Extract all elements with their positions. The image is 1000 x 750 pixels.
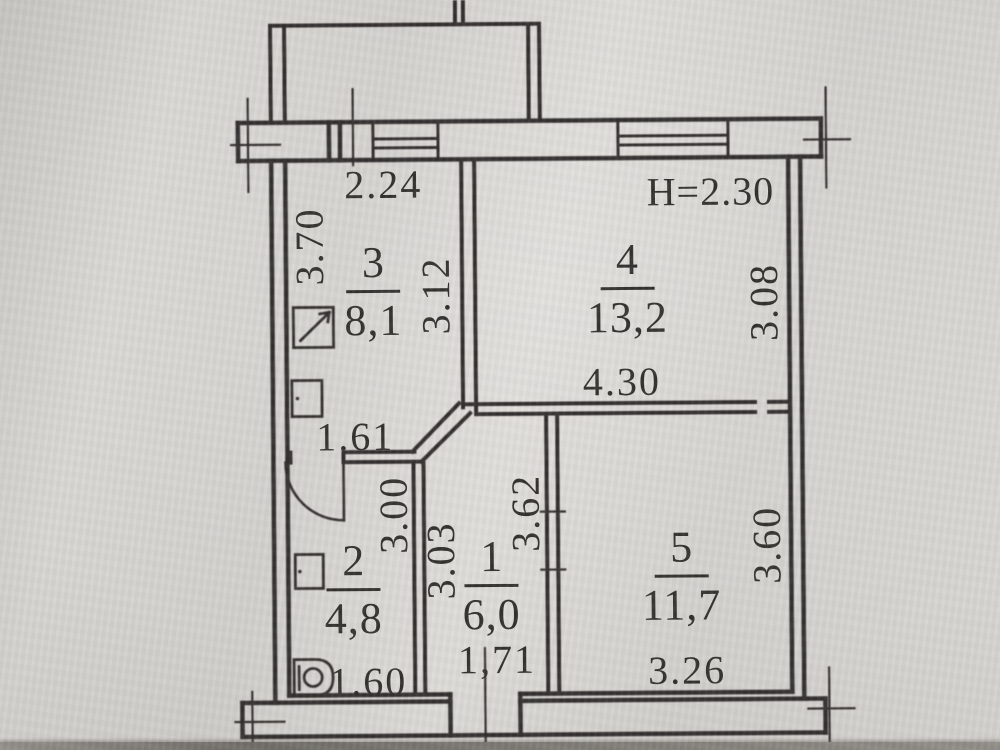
- dim-room4-bottom-width: 4.30: [583, 362, 661, 403]
- room-number: 3: [346, 241, 400, 293]
- room-number: 4: [600, 238, 654, 290]
- door-arc: [285, 462, 343, 520]
- dim-room2-right-height: 3.00: [374, 476, 415, 554]
- dim-room1-left-height: 3.03: [421, 521, 462, 599]
- dim-room2-bottom-width: 1.60: [329, 662, 407, 703]
- room-area: 11,7: [642, 577, 722, 628]
- room-area: 6,0: [462, 587, 520, 637]
- room-number: 5: [654, 525, 708, 577]
- dim-room3-bottom-width: 1.61: [316, 417, 394, 458]
- ceiling-height-note: H=2.30: [646, 167, 774, 215]
- room-5-label: 5 11,7: [641, 525, 721, 628]
- dim-room1-right-height: 3.62: [506, 474, 547, 552]
- room-area: 4,8: [324, 591, 382, 641]
- dim-room4-right-height: 3.08: [744, 263, 785, 341]
- floorplan-photo: H=2.30 3 8,1 4 13,2 5 11,7 1 6,0 2 4,8 2…: [0, 0, 1000, 750]
- toilet-icon: [294, 659, 333, 695]
- room-3-label: 3 8,1: [344, 241, 403, 343]
- window-symbol-room4: [618, 119, 728, 158]
- photo-bottom-edge: [0, 742, 1000, 750]
- balcony-outline: [270, 1, 540, 123]
- room-area: 8,1: [344, 293, 402, 343]
- dim-room1-bottom-width: 1,71: [458, 640, 536, 681]
- room-4-label: 4 13,2: [586, 238, 668, 341]
- window-symbol-kitchen: [373, 121, 438, 160]
- stove-icon: [292, 380, 322, 416]
- dim-room5-bottom-width: 3.26: [648, 650, 726, 691]
- floorplan: H=2.30 3 8,1 4 13,2 5 11,7 1 6,0 2 4,8 2…: [0, 0, 1000, 750]
- dim-room3-left-height: 3.70: [289, 207, 330, 285]
- room-area: 13,2: [587, 290, 668, 341]
- top-wall: [238, 118, 821, 161]
- dim-room3-right-height: 3.12: [416, 256, 457, 334]
- vent-icon: [293, 307, 333, 347]
- sink-icon: [295, 554, 323, 588]
- dim-room3-top-width: 2.24: [344, 165, 422, 206]
- dim-room5-right-height: 3.60: [747, 506, 788, 584]
- room-2-label: 2 4,8: [324, 539, 383, 641]
